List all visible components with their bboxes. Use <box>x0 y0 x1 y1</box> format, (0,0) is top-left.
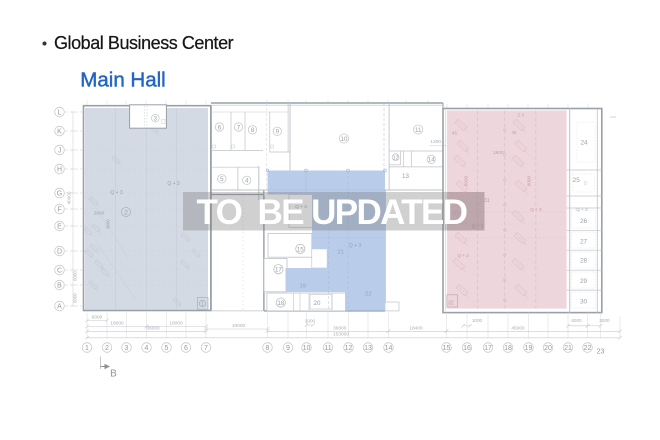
svg-text:6000: 6000 <box>92 314 103 320</box>
svg-text:Q + 3: Q + 3 <box>349 243 362 249</box>
svg-text:19: 19 <box>299 283 305 289</box>
svg-text:13: 13 <box>402 173 409 180</box>
svg-text:6: 6 <box>218 124 222 131</box>
svg-text:27: 27 <box>580 239 588 246</box>
svg-text:G: G <box>57 191 62 198</box>
svg-text:6: 6 <box>184 345 188 352</box>
svg-text:10000: 10000 <box>232 323 246 329</box>
svg-text:10: 10 <box>303 345 311 352</box>
svg-text:45: 45 <box>512 130 517 135</box>
svg-text:3: 3 <box>125 345 129 352</box>
svg-text:H: H <box>57 167 62 174</box>
svg-text:4: 4 <box>145 345 149 352</box>
svg-text:6000: 6000 <box>464 175 469 186</box>
svg-text:1: 1 <box>85 345 89 352</box>
svg-text:1300: 1300 <box>430 139 441 145</box>
svg-text:7: 7 <box>204 345 208 352</box>
svg-text:E: E <box>57 224 62 231</box>
svg-text:Q + 3: Q + 3 <box>110 190 123 196</box>
svg-text:40000: 40000 <box>67 191 72 204</box>
svg-text:5: 5 <box>165 345 169 352</box>
svg-text:17: 17 <box>275 267 282 274</box>
svg-text:29: 29 <box>580 278 588 285</box>
svg-text:2 3: 2 3 <box>517 113 524 119</box>
svg-text:14: 14 <box>428 157 435 164</box>
svg-text:Q + 3: Q + 3 <box>167 181 180 187</box>
svg-text:20: 20 <box>544 345 552 352</box>
svg-text:30: 30 <box>580 298 588 305</box>
svg-text:18: 18 <box>277 300 284 307</box>
svg-text:3000: 3000 <box>599 318 610 323</box>
svg-text:1: 1 <box>201 302 204 308</box>
svg-text:24: 24 <box>580 139 588 146</box>
svg-text:9000: 9000 <box>106 219 111 229</box>
svg-text:9: 9 <box>276 129 280 136</box>
svg-text:6000: 6000 <box>527 175 532 186</box>
svg-text:Global Business Center: Global Business Center <box>54 33 234 53</box>
svg-text:C: C <box>57 268 62 275</box>
svg-text:14: 14 <box>385 345 393 352</box>
svg-text:22: 22 <box>365 292 371 298</box>
svg-text:13: 13 <box>364 345 372 352</box>
svg-text:Q + 3: Q + 3 <box>576 207 588 212</box>
svg-text:23: 23 <box>597 349 605 356</box>
svg-text:36000: 36000 <box>333 326 347 332</box>
svg-text:10: 10 <box>341 136 348 143</box>
svg-text:36000: 36000 <box>146 326 160 332</box>
svg-text:K: K <box>57 129 62 136</box>
svg-text:5: 5 <box>220 176 224 183</box>
svg-text:2000: 2000 <box>305 318 316 323</box>
svg-text:31: 31 <box>484 198 490 204</box>
svg-text:45: 45 <box>452 131 457 136</box>
svg-text:18400: 18400 <box>409 326 423 332</box>
svg-text:J: J <box>58 148 62 155</box>
svg-text:153000: 153000 <box>333 332 349 338</box>
svg-text:26: 26 <box>580 218 588 225</box>
svg-text:12: 12 <box>345 345 353 352</box>
svg-text:18000: 18000 <box>169 321 183 327</box>
svg-text:B: B <box>57 283 62 290</box>
svg-text:A: A <box>57 304 62 311</box>
svg-text:18: 18 <box>504 345 512 352</box>
svg-text:17: 17 <box>484 345 492 352</box>
svg-text:12: 12 <box>393 155 399 161</box>
svg-text:7: 7 <box>237 124 241 131</box>
svg-text:F: F <box>57 207 61 214</box>
svg-text:15: 15 <box>443 345 451 352</box>
svg-text:28: 28 <box>580 258 588 265</box>
svg-text:9: 9 <box>286 345 290 352</box>
svg-text:2: 2 <box>124 209 128 216</box>
svg-text:16: 16 <box>463 345 471 352</box>
svg-text:2: 2 <box>105 345 109 352</box>
svg-text:18000: 18000 <box>110 321 124 327</box>
svg-text:32: 32 <box>448 300 454 306</box>
svg-text:20: 20 <box>314 300 321 307</box>
svg-text:6000: 6000 <box>571 318 582 323</box>
svg-text:15: 15 <box>297 246 304 253</box>
svg-text:19: 19 <box>525 345 533 352</box>
svg-text:D: D <box>57 249 62 256</box>
svg-text:6000: 6000 <box>73 293 78 303</box>
svg-text:6000: 6000 <box>73 271 78 281</box>
svg-text:4: 4 <box>245 178 249 185</box>
svg-text:11: 11 <box>324 345 331 352</box>
svg-text:8: 8 <box>251 127 255 134</box>
svg-text:1900: 1900 <box>493 150 504 156</box>
svg-text:45000: 45000 <box>511 326 525 332</box>
svg-text:L: L <box>58 110 62 117</box>
svg-text:21: 21 <box>338 250 344 256</box>
svg-text:8: 8 <box>266 345 270 352</box>
svg-text:Q + 3: Q + 3 <box>530 207 542 212</box>
svg-text:B: B <box>110 369 117 380</box>
svg-text:1000: 1000 <box>472 318 483 323</box>
svg-text:21: 21 <box>564 345 572 352</box>
svg-text:25: 25 <box>573 177 581 184</box>
svg-text:22: 22 <box>584 345 592 352</box>
svg-text:Main Hall: Main Hall <box>80 69 165 92</box>
svg-text:11: 11 <box>415 127 422 134</box>
svg-text:Q + 3: Q + 3 <box>457 253 469 258</box>
svg-text:TO BE UPDATED: TO BE UPDATED <box>197 193 467 232</box>
svg-text:2600: 2600 <box>94 211 105 217</box>
